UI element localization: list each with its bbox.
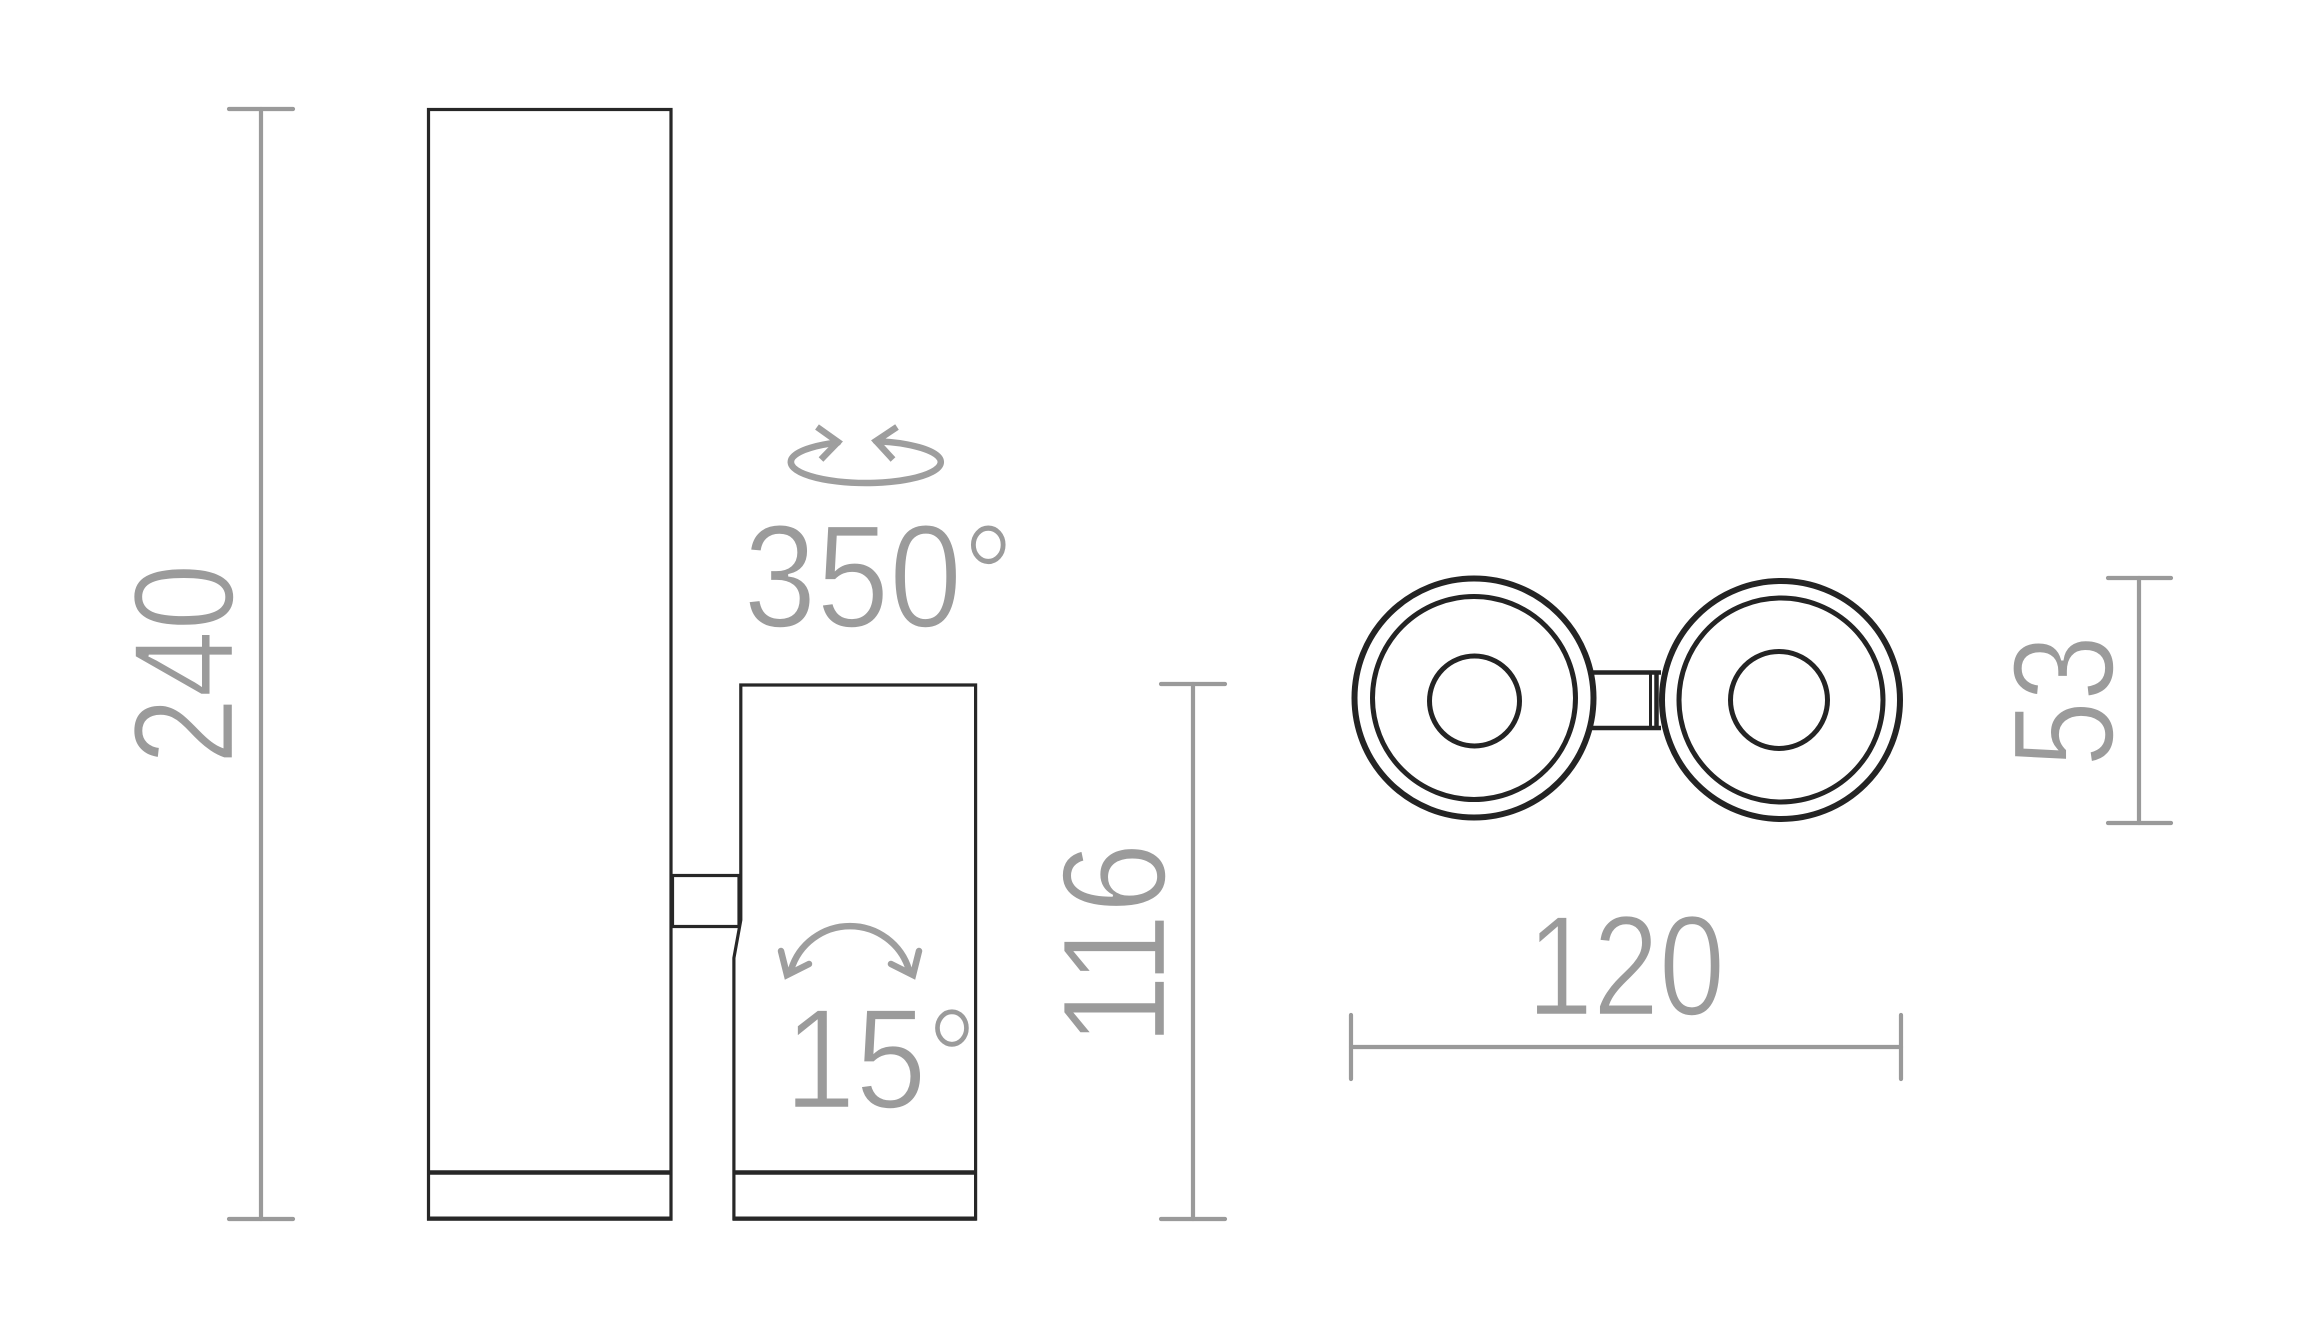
svg-text:240: 240 [105, 564, 264, 765]
svg-text:120: 120 [1527, 887, 1725, 1046]
svg-text:116: 116 [1032, 843, 1197, 1046]
svg-text:15°: 15° [785, 980, 978, 1139]
svg-text:53: 53 [1983, 635, 2144, 767]
svg-text:350°: 350° [744, 495, 1015, 659]
